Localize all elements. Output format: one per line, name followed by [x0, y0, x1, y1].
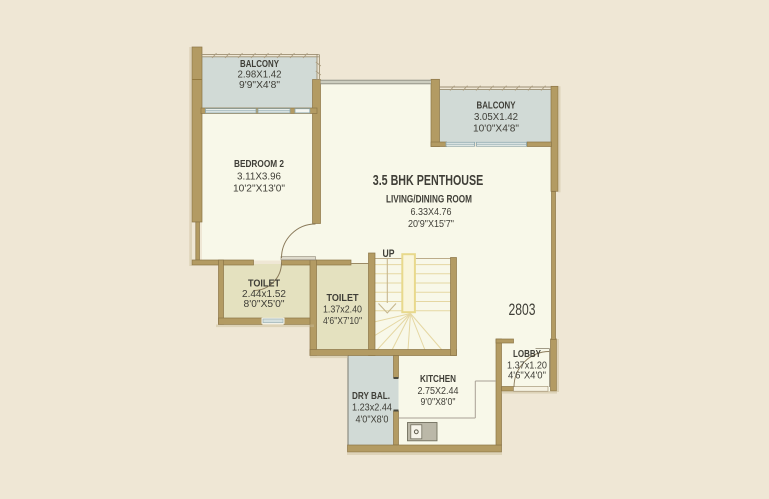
svg-text:LIVING/DINING ROOM: LIVING/DINING ROOM	[386, 194, 472, 206]
svg-text:1.23x2.44: 1.23x2.44	[352, 403, 392, 414]
svg-text:4'6"X4'0": 4'6"X4'0"	[508, 371, 546, 382]
svg-text:3.5 BHK PENTHOUSE: 3.5 BHK PENTHOUSE	[373, 172, 484, 189]
svg-text:2.75X2.44: 2.75X2.44	[418, 386, 459, 397]
svg-text:6.33X4.76: 6.33X4.76	[411, 206, 452, 218]
svg-text:DRY BAL.: DRY BAL.	[352, 391, 390, 402]
svg-text:BALCONY: BALCONY	[477, 100, 516, 112]
svg-text:2.98X1.42: 2.98X1.42	[238, 70, 282, 81]
svg-text:9'0"X8'0": 9'0"X8'0"	[421, 397, 456, 408]
svg-text:10'0"X4'8": 10'0"X4'8"	[473, 124, 519, 135]
svg-text:3.05X1.42: 3.05X1.42	[474, 112, 518, 123]
svg-text:10'2"X13'0": 10'2"X13'0"	[233, 184, 285, 195]
svg-text:2803: 2803	[509, 300, 536, 319]
svg-text:TOILET: TOILET	[248, 278, 281, 290]
svg-text:BALCONY: BALCONY	[240, 58, 279, 70]
svg-text:1.37x2.40: 1.37x2.40	[323, 305, 362, 316]
svg-text:4'0"X8'0: 4'0"X8'0	[356, 415, 389, 426]
svg-text:KITCHEN: KITCHEN	[420, 373, 456, 385]
svg-text:8'0"X5'0": 8'0"X5'0"	[244, 299, 285, 310]
svg-text:3.11X3.96: 3.11X3.96	[237, 172, 281, 183]
svg-text:LOBBY: LOBBY	[513, 348, 541, 360]
svg-text:UP: UP	[383, 248, 395, 260]
svg-text:TOILET: TOILET	[327, 292, 360, 304]
svg-text:9'9"X4'8": 9'9"X4'8"	[239, 80, 280, 91]
svg-text:BEDROOM 2: BEDROOM 2	[234, 158, 284, 170]
svg-text:20'9"X15'7": 20'9"X15'7"	[408, 218, 454, 230]
svg-text:4'6"X7'10": 4'6"X7'10"	[323, 316, 362, 327]
